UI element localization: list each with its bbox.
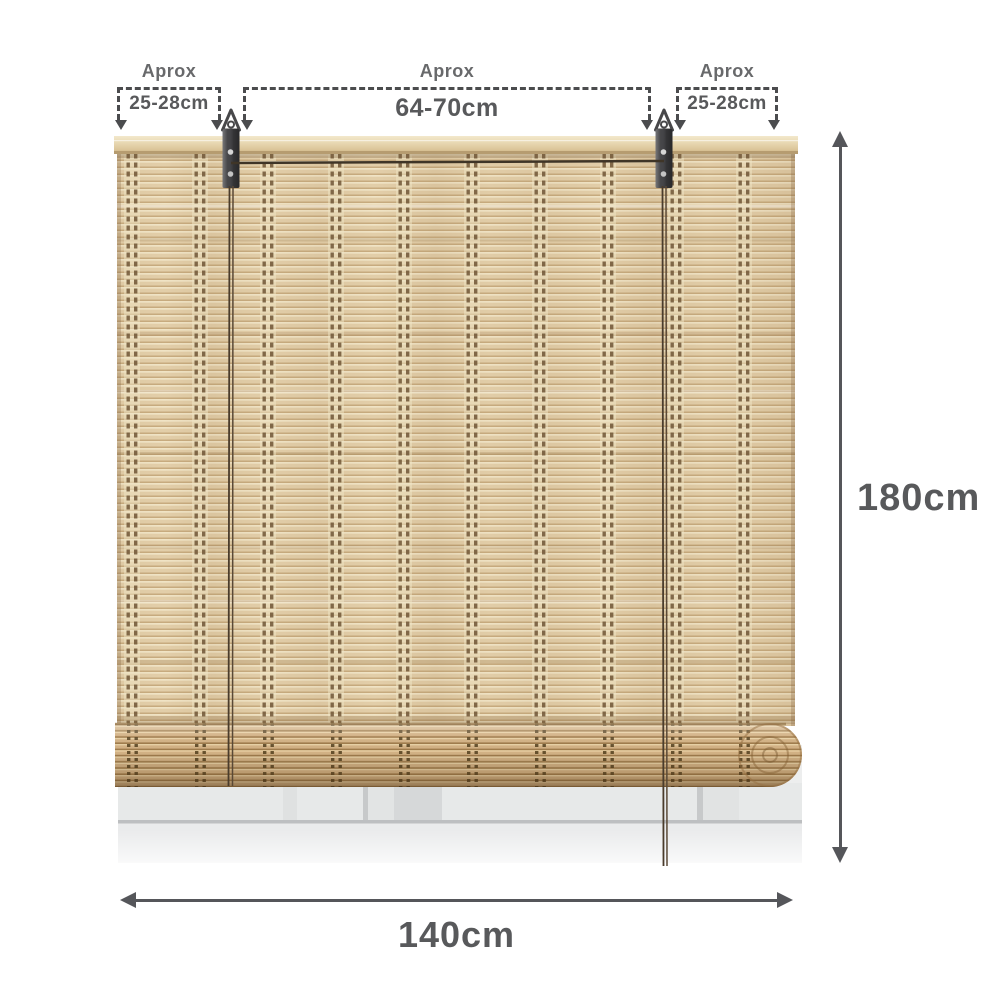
arrow-up-icon bbox=[832, 131, 848, 147]
window-post bbox=[368, 783, 394, 823]
height-dimension-line bbox=[839, 145, 842, 849]
bracket-screw bbox=[661, 149, 667, 155]
bracket-plate-shine bbox=[656, 129, 673, 188]
bracket-screw bbox=[228, 171, 234, 177]
width-value: 140cm bbox=[120, 914, 793, 956]
measurement-top-right-value: 25-28cm bbox=[679, 93, 775, 115]
arrow-down-icon bbox=[241, 120, 253, 130]
measurement-top-center: Aprox 64-70cm bbox=[243, 87, 651, 120]
arrow-left-icon bbox=[120, 892, 136, 908]
roll-shading bbox=[115, 723, 802, 787]
window-sill-line bbox=[118, 820, 802, 824]
window-post-edge bbox=[697, 783, 703, 823]
head-rail-bottom-edge bbox=[114, 151, 798, 154]
approx-label: Aprox bbox=[110, 61, 228, 82]
measurement-top-right: Aprox 25-28cm bbox=[676, 87, 778, 120]
arrow-down-icon bbox=[768, 120, 780, 130]
window-post bbox=[703, 783, 739, 823]
window-post-shaded bbox=[394, 783, 442, 823]
bracket-screw bbox=[661, 171, 667, 177]
head-rail-highlight bbox=[114, 140, 798, 141]
arrow-down-icon bbox=[641, 120, 653, 130]
blind-left-edge bbox=[117, 152, 121, 726]
product-dimension-diagram: Aprox 25-28cm Aprox 64-70cm Aprox 25-28c… bbox=[0, 0, 1000, 1000]
photo-bottom-fade bbox=[105, 830, 815, 875]
mount-bracket-left bbox=[223, 110, 240, 188]
arrow-right-icon bbox=[777, 892, 793, 908]
measurement-top-left: Aprox 25-28cm bbox=[117, 87, 221, 120]
blind-roll bbox=[115, 716, 802, 787]
cord-right bbox=[663, 186, 664, 866]
cord-left bbox=[229, 186, 230, 786]
blind-right-edge bbox=[791, 152, 795, 726]
blind-body bbox=[117, 152, 795, 726]
arrow-down-icon bbox=[832, 847, 848, 863]
blind-head-rail bbox=[114, 136, 798, 158]
width-dimension-line bbox=[134, 899, 779, 902]
window-post bbox=[283, 783, 297, 823]
mount-bracket-right bbox=[656, 110, 673, 188]
height-value: 180cm bbox=[857, 477, 980, 520]
head-rail-wood bbox=[114, 136, 798, 153]
arrow-down-icon bbox=[115, 120, 127, 130]
bamboo-blind-photo bbox=[0, 0, 1000, 1000]
stitch-columns bbox=[117, 152, 795, 726]
measurement-top-left-value: 25-28cm bbox=[120, 93, 218, 115]
bracket-screw bbox=[228, 149, 234, 155]
approx-label: Aprox bbox=[236, 61, 658, 82]
head-rail-shadow bbox=[117, 154, 795, 158]
measurement-top-center-value: 64-70cm bbox=[246, 94, 648, 123]
arrow-down-icon bbox=[674, 120, 686, 130]
cord-right bbox=[666, 186, 667, 866]
arrow-down-icon bbox=[211, 120, 223, 130]
window-post-edge bbox=[363, 783, 368, 823]
bracket-plate-shine bbox=[223, 129, 240, 188]
approx-label: Aprox bbox=[669, 61, 785, 82]
cord-left bbox=[233, 186, 234, 786]
